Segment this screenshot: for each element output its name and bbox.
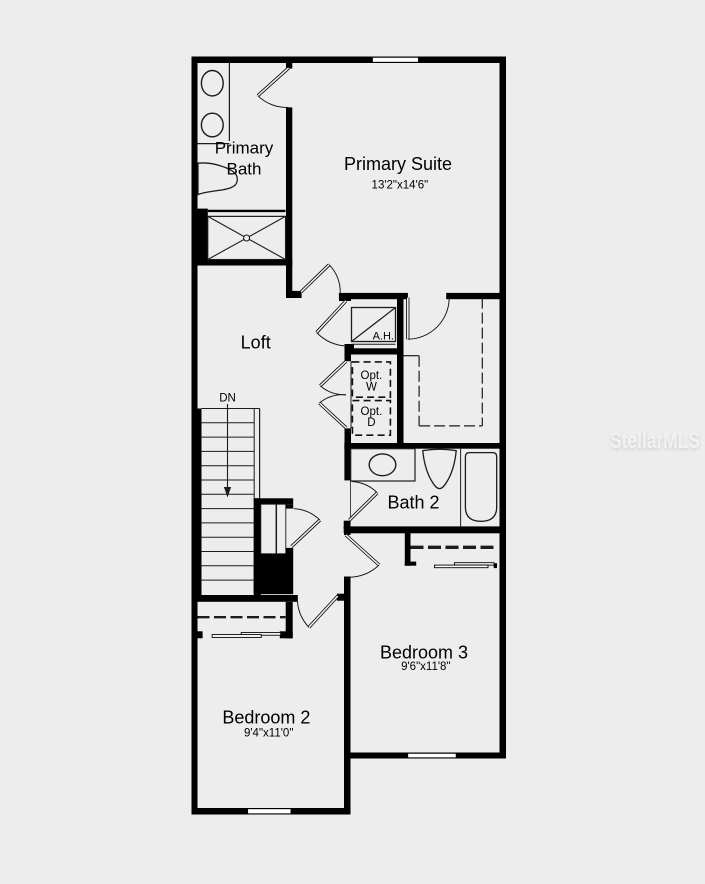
svg-text:9'4"x11'0": 9'4"x11'0" <box>244 728 293 740</box>
svg-text:9'6"x11'8": 9'6"x11'8" <box>401 661 450 673</box>
svg-text:13'2"x14'6": 13'2"x14'6" <box>372 179 429 191</box>
svg-text:StellarMLS: StellarMLS <box>610 428 700 453</box>
svg-text:W: W <box>366 382 377 394</box>
svg-text:Loft: Loft <box>241 333 271 353</box>
svg-text:Bedroom 3: Bedroom 3 <box>380 643 468 663</box>
svg-text:Opt.: Opt. <box>361 370 383 382</box>
svg-text:Bedroom 2: Bedroom 2 <box>222 708 310 728</box>
svg-text:Bath 2: Bath 2 <box>387 492 439 512</box>
svg-text:Primary Suite: Primary Suite <box>344 154 452 174</box>
svg-text:Bath: Bath <box>227 160 262 179</box>
svg-text:DN: DN <box>219 393 236 405</box>
svg-text:D: D <box>367 417 375 429</box>
svg-text:Primary: Primary <box>215 139 274 158</box>
svg-text:A.H.: A.H. <box>373 331 394 343</box>
